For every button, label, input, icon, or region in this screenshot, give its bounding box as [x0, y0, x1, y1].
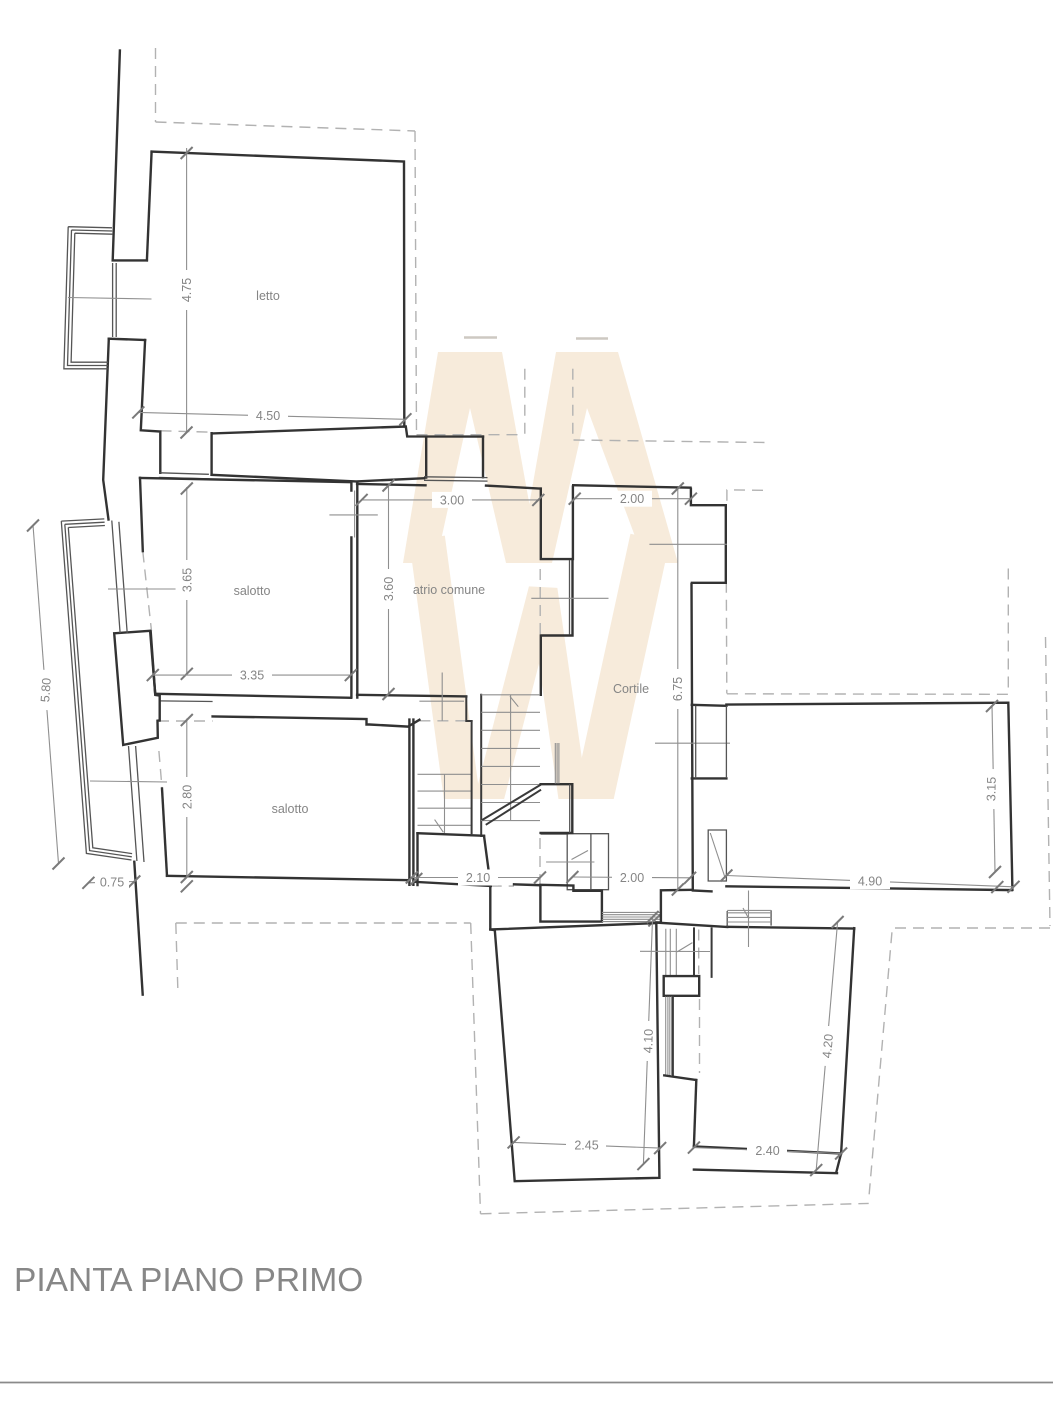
- svg-text:2.80: 2.80: [180, 785, 194, 809]
- svg-text:2.10: 2.10: [466, 871, 490, 885]
- svg-text:3.35: 3.35: [240, 669, 264, 683]
- svg-text:4.20: 4.20: [820, 1033, 836, 1059]
- svg-text:3.00: 3.00: [440, 493, 464, 507]
- svg-text:3.65: 3.65: [180, 568, 194, 592]
- svg-text:3.15: 3.15: [984, 777, 998, 802]
- svg-text:2.45: 2.45: [574, 1139, 598, 1153]
- svg-text:PIANTA PIANO PRIMO: PIANTA PIANO PRIMO: [14, 1262, 363, 1299]
- svg-text:salotto: salotto: [272, 802, 309, 816]
- svg-text:Cortile: Cortile: [613, 682, 649, 696]
- svg-text:4.75: 4.75: [180, 278, 194, 302]
- svg-text:letto: letto: [256, 289, 280, 303]
- svg-text:4.10: 4.10: [641, 1029, 656, 1054]
- svg-text:0.75: 0.75: [100, 876, 124, 890]
- svg-text:2.40: 2.40: [755, 1144, 779, 1158]
- svg-text:salotto: salotto: [234, 584, 271, 598]
- svg-text:5.80: 5.80: [38, 677, 54, 702]
- svg-text:2.00: 2.00: [620, 871, 644, 885]
- svg-text:3.60: 3.60: [382, 577, 396, 601]
- svg-text:4.50: 4.50: [256, 409, 280, 423]
- svg-text:atrio comune: atrio comune: [413, 583, 485, 597]
- svg-text:4.90: 4.90: [858, 875, 882, 889]
- svg-text:2.00: 2.00: [620, 492, 644, 506]
- svg-text:6.75: 6.75: [671, 677, 685, 701]
